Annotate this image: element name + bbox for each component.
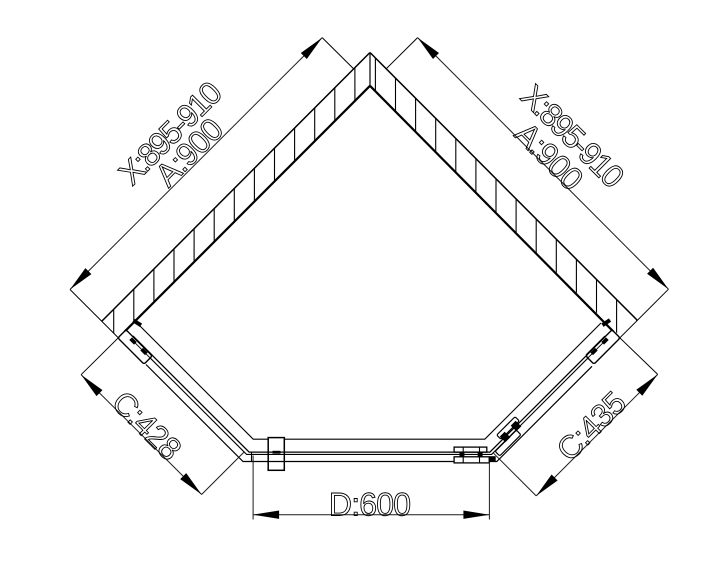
- svg-text:D:600: D:600: [329, 486, 410, 522]
